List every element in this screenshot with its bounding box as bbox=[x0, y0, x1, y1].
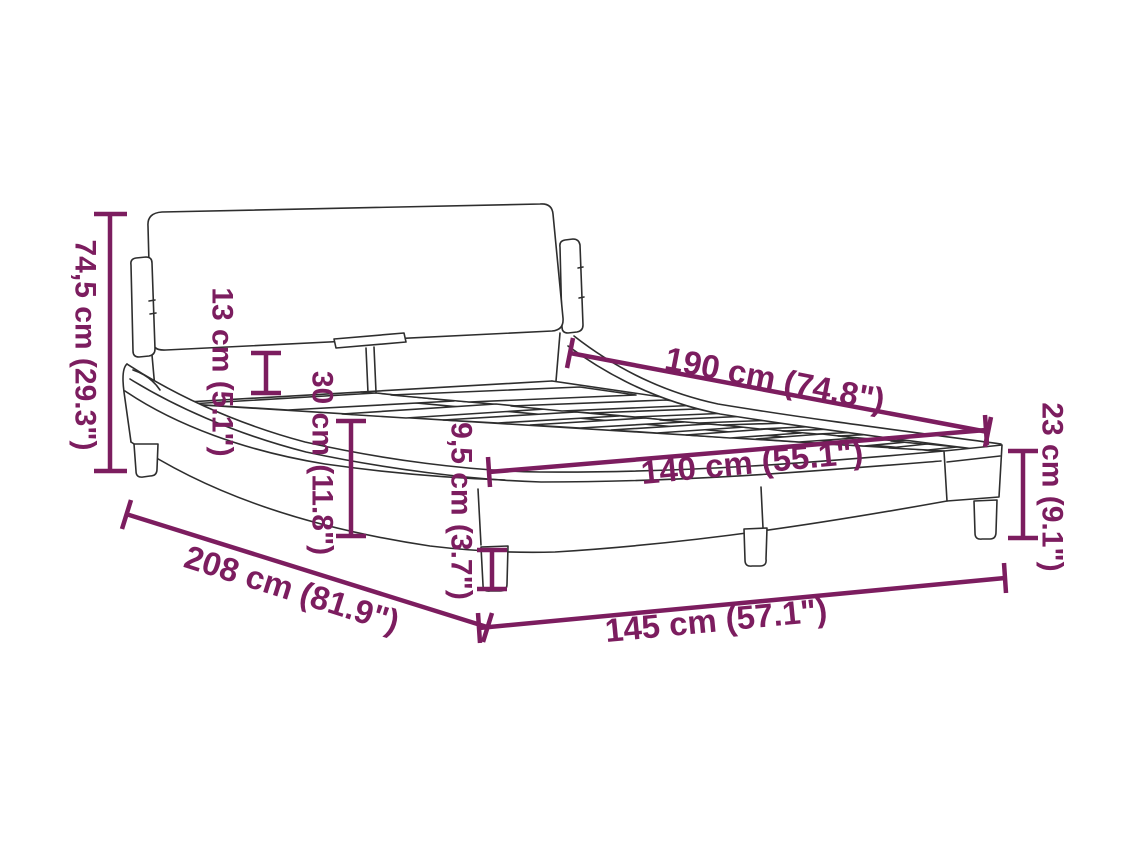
dim-headboard-height-label: 74,5 cm (29.3") bbox=[69, 239, 102, 450]
dim-side-rail-height-label: 30 cm (11.8") bbox=[306, 371, 339, 555]
leg-front-middle bbox=[744, 528, 767, 566]
leg-headboard bbox=[134, 444, 158, 477]
leg-front-left bbox=[481, 546, 508, 591]
headboard-left-bracket bbox=[131, 257, 155, 357]
headboard bbox=[131, 204, 584, 400]
foot-end-face bbox=[944, 445, 1002, 501]
dimension-diagram: 74,5 cm (29.3") 13 cm (5.1") 30 cm (11.8… bbox=[0, 0, 1137, 852]
dim-line-cushion-depth bbox=[251, 353, 281, 393]
dim-leg-height-label: 9,5 cm (3.7") bbox=[445, 422, 478, 600]
dim-total-width-label: 145 cm (57.1") bbox=[603, 591, 828, 649]
dim-frame-end-height-label: 23 cm (9.1") bbox=[1036, 402, 1069, 571]
dim-line-frame-end-height bbox=[1008, 451, 1038, 538]
bed-frame-diagram-canvas: 74,5 cm (29.3") 13 cm (5.1") 30 cm (11.8… bbox=[0, 0, 1137, 852]
leg-foot bbox=[974, 500, 997, 539]
dim-cushion-depth-label: 13 cm (5.1") bbox=[206, 287, 239, 456]
